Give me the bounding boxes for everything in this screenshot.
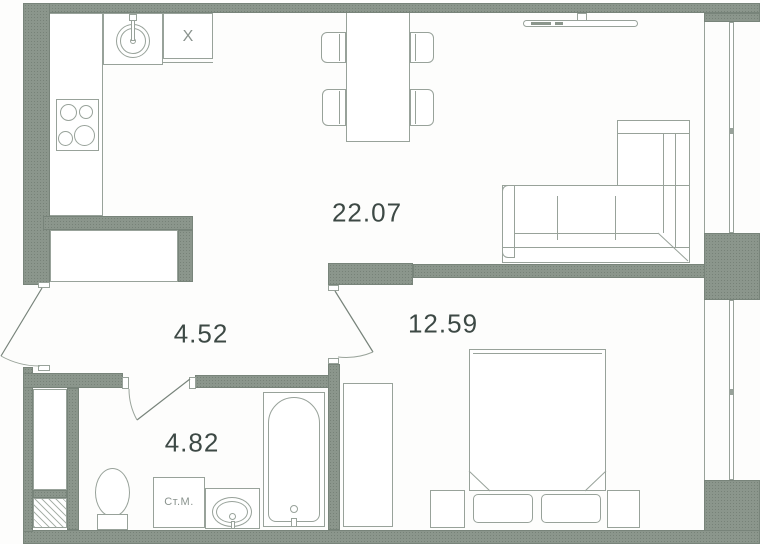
wall-divider-thick — [328, 263, 413, 285]
bedroom-door-jamb-top — [328, 285, 339, 291]
hall-closet — [50, 230, 178, 282]
wall-bottom — [23, 530, 760, 544]
washing-machine-label: Ст.М. — [164, 496, 194, 508]
sofa-seat-front-line-1 — [515, 233, 658, 234]
bed-inner-line — [473, 353, 602, 354]
nightstand-right — [607, 490, 640, 528]
entry-door-jamb-top — [38, 282, 50, 288]
room-label-bedroom: 12.59 — [408, 309, 478, 340]
wall-bathroom-right — [328, 364, 340, 530]
stove-burner-3 — [58, 131, 73, 146]
bed-pillow-left — [473, 494, 533, 523]
chair-left-top — [321, 32, 346, 63]
bathtub-inner — [268, 397, 320, 522]
kitchen-tap-cap — [129, 14, 137, 21]
bathroom-door-jamb-left — [122, 377, 129, 389]
tv-speaker-dash-1 — [531, 22, 551, 25]
sofa-chaise-back-line — [617, 133, 690, 134]
wall-left-upper — [23, 3, 50, 285]
wall-shaft-separator — [33, 490, 67, 498]
wall-top-right-corner — [704, 13, 760, 22]
bedroom-door-arc — [338, 352, 373, 357]
floor-plan: X Ст.М. — [0, 0, 760, 544]
entry-door-arc — [1, 356, 40, 366]
chair-right-top-back-line — [415, 34, 416, 61]
bathtub-drain — [290, 505, 298, 513]
bed-blanket — [469, 349, 606, 491]
bath-sink-tap — [229, 513, 236, 520]
stove-burner-1 — [60, 104, 77, 121]
bedroom-wardrobe — [343, 383, 393, 527]
chair-left-bottom-back-line — [339, 91, 340, 124]
kitchen-tap — [131, 18, 135, 41]
bathroom-door-leaf — [137, 379, 190, 420]
wall-closet-right — [178, 230, 193, 282]
toilet-tank — [97, 514, 128, 530]
living-window-sill-line — [704, 22, 705, 233]
bedroom-door-jamb-bottom — [328, 358, 339, 364]
sofa-chaise-line-2 — [675, 133, 676, 247]
tv-speaker-dash-2 — [555, 22, 563, 25]
room-label-living-kitchen: 22.07 — [332, 198, 402, 229]
sofa-chaise-line-1 — [663, 133, 664, 233]
wall-bathroom-top-right — [195, 375, 330, 388]
wall-closet-top — [43, 216, 193, 230]
stove-burner-4 — [74, 125, 95, 146]
bathroom-door-jamb-right — [189, 377, 196, 389]
stove-burner-2 — [79, 105, 93, 119]
kitchen-cabinet-x-label: X — [183, 28, 194, 46]
chair-left-top-back-line — [339, 34, 340, 61]
bedroom-window-mullion — [729, 389, 734, 395]
wall-top — [23, 3, 760, 13]
room-label-hallway: 4.52 — [174, 319, 229, 350]
kitchen-cabinet-x-shelf-line — [163, 62, 213, 63]
sofa-seat-front-line-2 — [503, 247, 689, 248]
chair-right-bottom-back-line — [415, 91, 416, 124]
wall-divider-thin — [413, 264, 706, 278]
bathtub-tap — [291, 518, 297, 527]
bath-sink-tap-stem — [231, 521, 235, 529]
room-label-bathroom: 4.82 — [165, 428, 220, 459]
chair-left-bottom — [322, 89, 346, 126]
wall-left-lower — [23, 367, 33, 532]
bathroom-door-arc — [129, 389, 137, 420]
plumbing-shaft-hatched — [33, 498, 67, 528]
toilet-bowl — [95, 468, 130, 517]
entry-door-leaf — [1, 288, 42, 356]
chair-right-bottom — [410, 89, 434, 126]
wall-bathroom-top-left — [23, 373, 123, 388]
bed-pillow-right — [541, 494, 601, 523]
nightstand-left — [430, 490, 465, 528]
dining-table — [346, 12, 410, 142]
wall-right-pier — [704, 233, 760, 300]
chair-right-top — [410, 32, 434, 63]
wall-bathroom-inner — [67, 388, 79, 530]
bedroom-door-leaf — [335, 291, 373, 352]
living-window-mullion — [729, 128, 734, 134]
wall-right-bottom-corner — [704, 480, 760, 532]
sofa-seat — [502, 185, 690, 263]
entry-door-jamb-bottom — [38, 365, 50, 371]
bedroom-window-sill-line — [704, 300, 705, 480]
plumbing-shaft — [33, 389, 67, 490]
